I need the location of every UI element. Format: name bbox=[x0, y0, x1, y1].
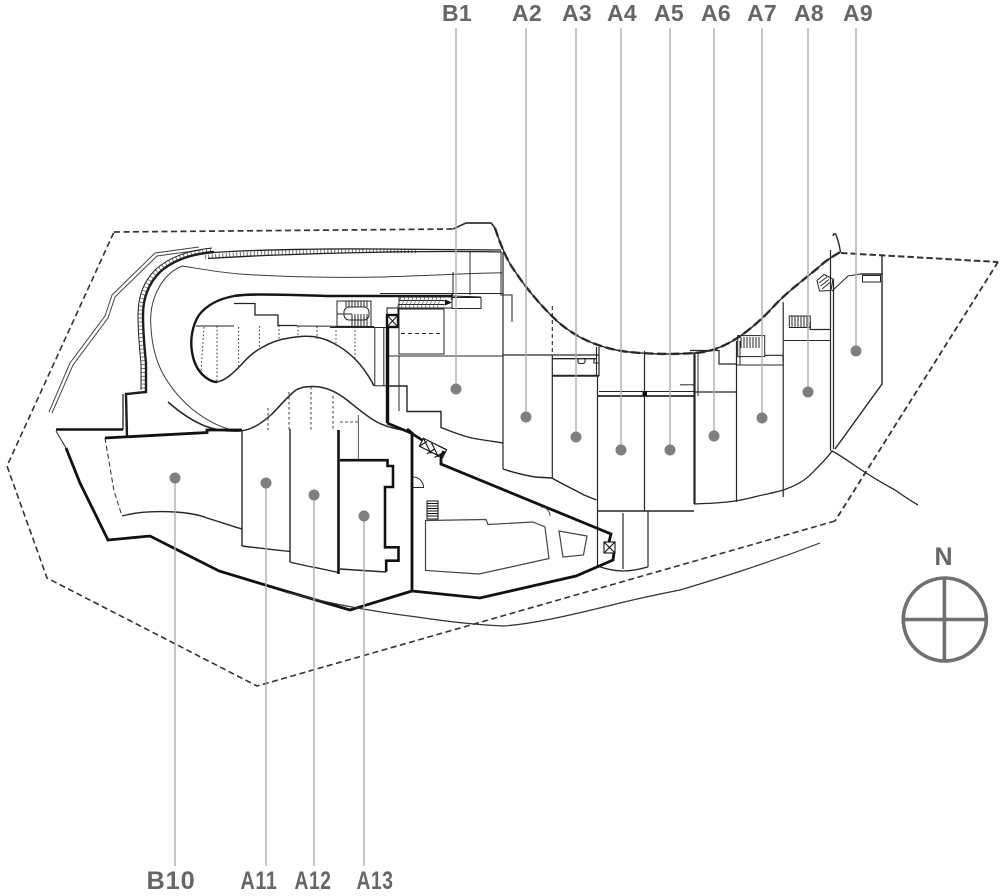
svg-text:A9: A9 bbox=[843, 0, 873, 26]
svg-text:A2: A2 bbox=[512, 0, 542, 26]
svg-text:A5: A5 bbox=[654, 0, 684, 26]
svg-text:A11: A11 bbox=[241, 867, 278, 895]
svg-text:A13: A13 bbox=[357, 867, 394, 895]
svg-text:A8: A8 bbox=[794, 0, 824, 26]
svg-text:B10: B10 bbox=[147, 867, 196, 895]
svg-text:A7: A7 bbox=[747, 0, 777, 26]
svg-text:B1: B1 bbox=[442, 0, 472, 26]
svg-text:N: N bbox=[934, 543, 952, 571]
svg-text:A4: A4 bbox=[607, 0, 637, 26]
svg-text:A6: A6 bbox=[701, 0, 731, 26]
svg-text:A12: A12 bbox=[295, 867, 332, 895]
svg-text:A3: A3 bbox=[562, 0, 592, 26]
